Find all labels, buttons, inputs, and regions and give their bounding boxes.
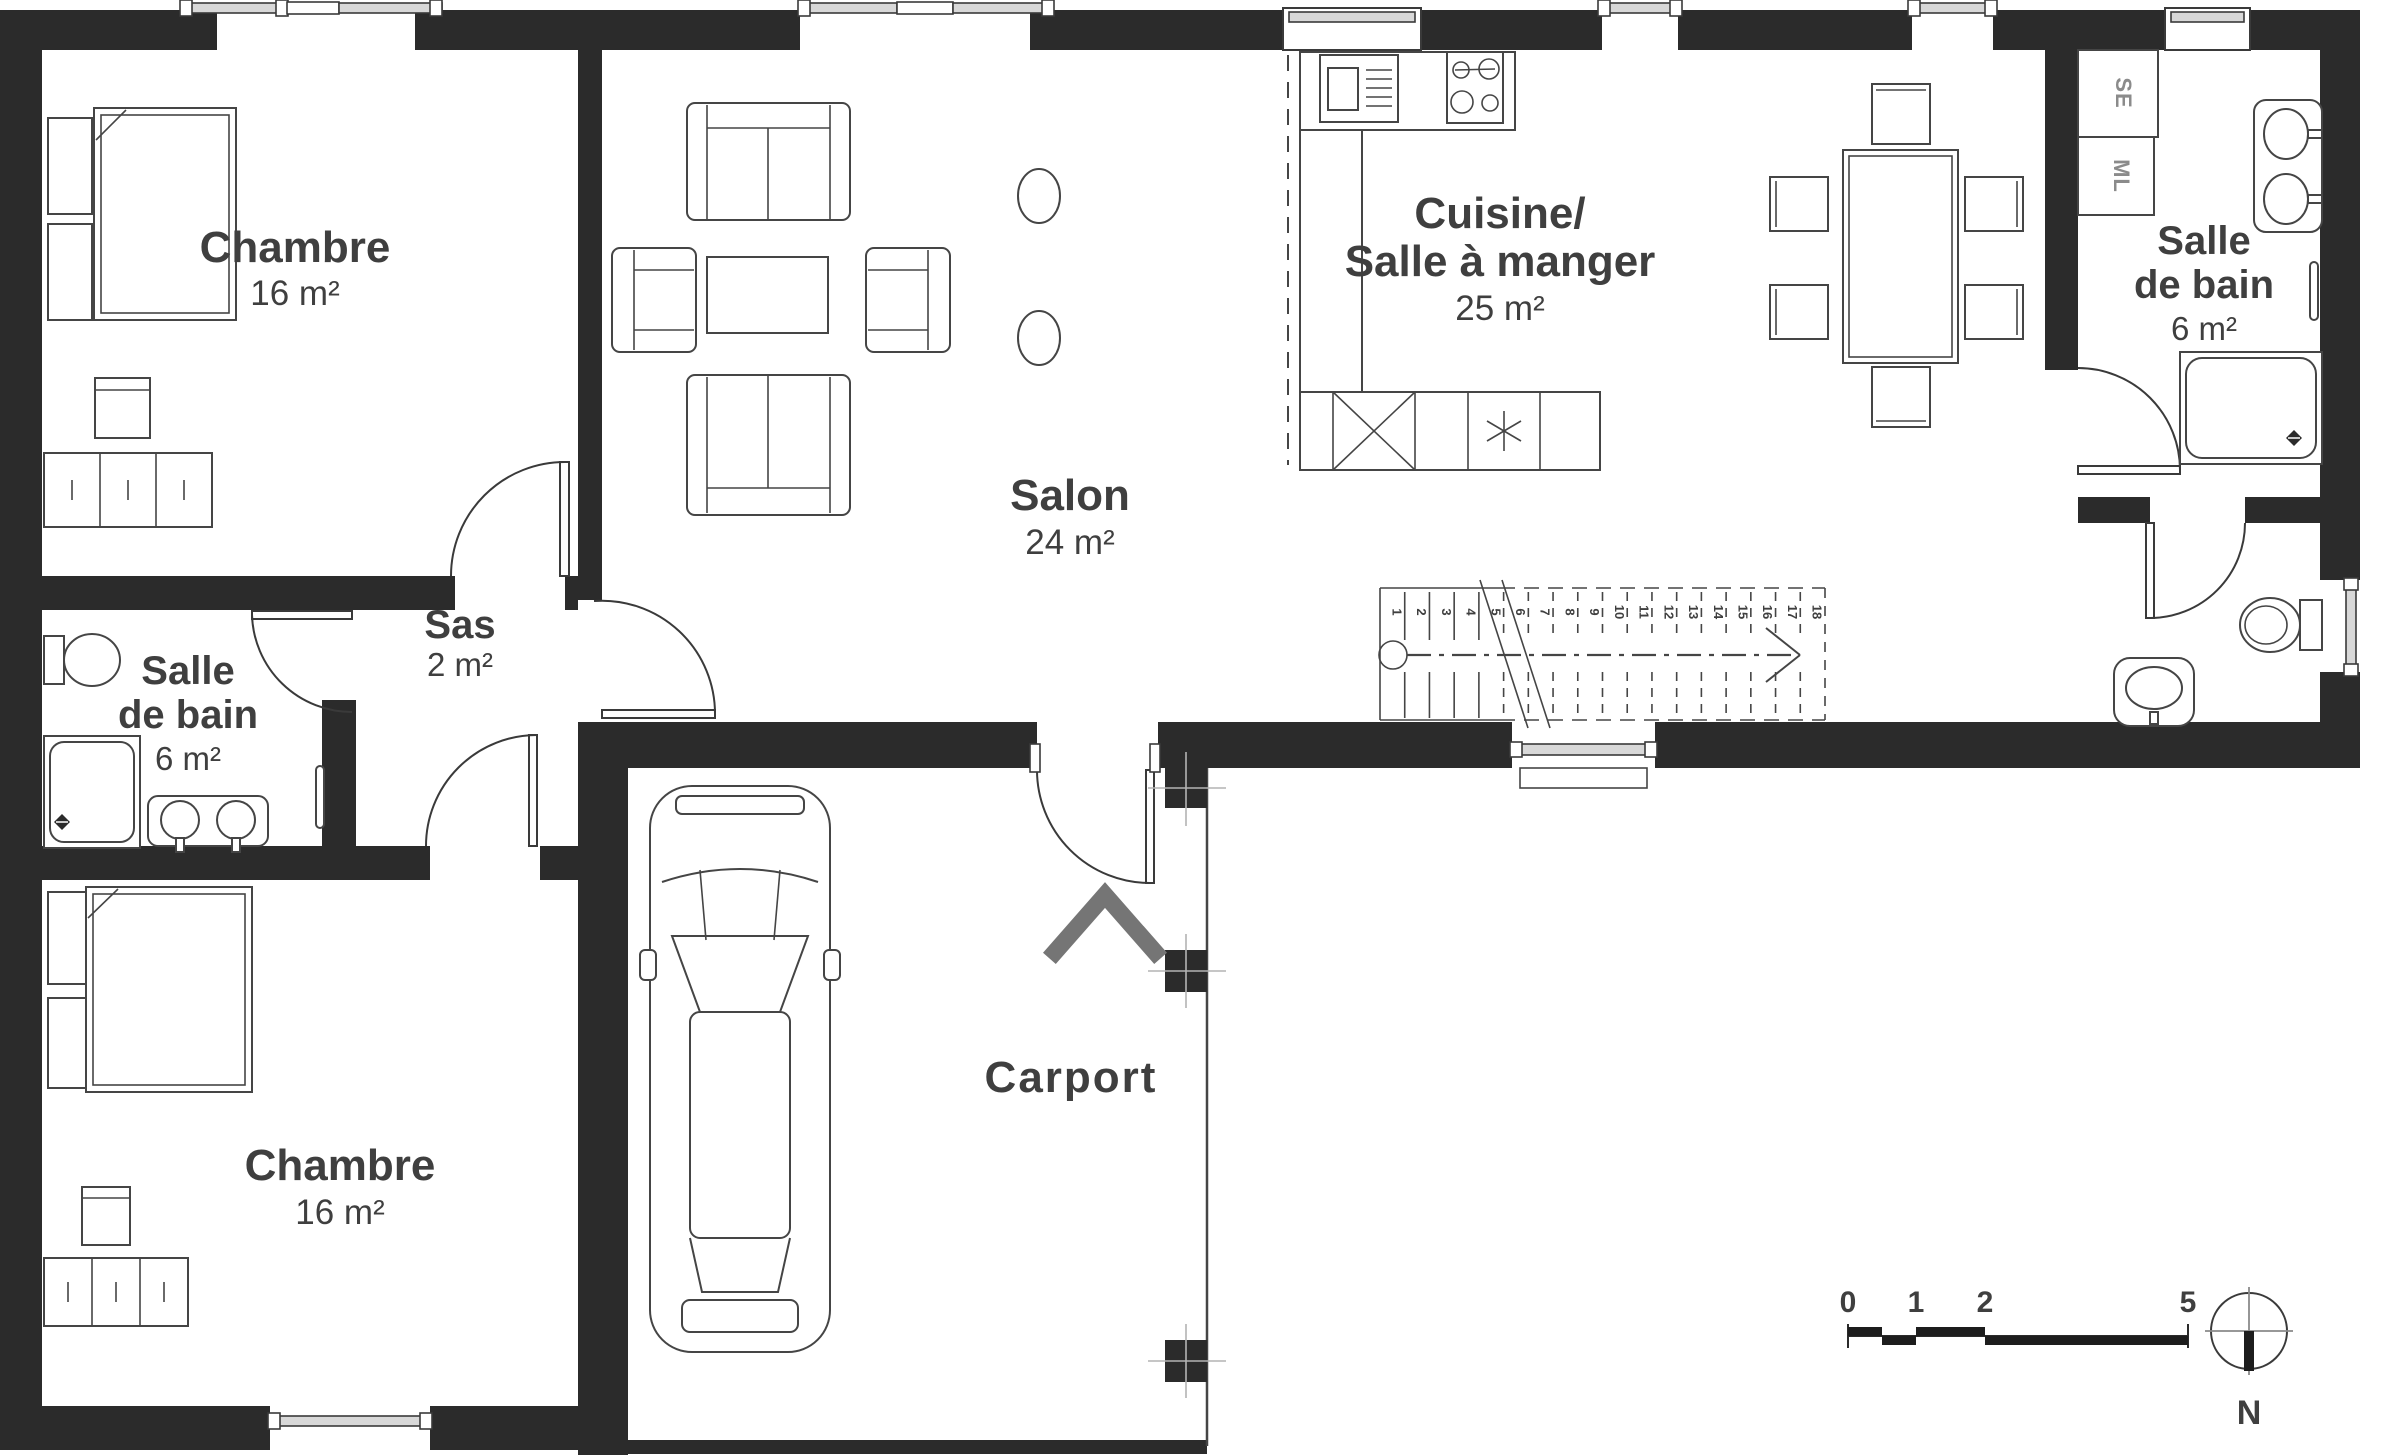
car [640,786,840,1352]
pouf-top [1018,169,1060,223]
cuisine-label-1: Cuisine/ [1414,189,1585,238]
window-wc-east [2322,578,2360,676]
stair-number: 13 [1686,605,1701,619]
scale-1: 1 [1908,1286,1925,1319]
sas-label: Sas [424,603,495,647]
toilet-wc [2240,598,2322,652]
shower-sdb-right [2180,352,2322,464]
stair-number: 17 [1785,605,1800,619]
salon-furniture [612,103,1060,515]
chair [1770,177,1828,231]
dryer-label: SE [2111,77,2136,108]
scale-2: 2 [1977,1286,1994,1319]
sdb-left-area: 6 m² [155,740,221,777]
sdb-right-label-2: de bain [2134,263,2274,307]
door-sas-hall [594,601,715,718]
freezer-star-icon [1487,411,1521,451]
windows [180,0,2360,788]
chair [1872,84,1930,144]
compass-north-label: N [2237,1394,2262,1432]
window-chambre1-b [287,0,442,16]
shower-sdb-left [44,736,140,848]
stairs: 123456789101112131415161718 [1379,580,1825,728]
window-kitchen [1283,8,1421,50]
dresser-chambre2 [44,1258,188,1326]
chair [1872,367,1930,427]
window-entry-hall [1510,722,1657,788]
chambre1-label: Chambre [200,223,391,272]
dresser-chambre1 [44,453,212,527]
sdb-right-label-1: Salle [2157,219,2250,263]
stair-number: 12 [1661,605,1676,619]
scale-0: 0 [1840,1286,1857,1319]
sdb-left-label-2: de bain [118,693,258,737]
chambre2-area: 16 m² [295,1193,384,1232]
desk-chambre2 [82,1187,130,1245]
stair-number: 9 [1587,608,1602,615]
bed-chambre2 [48,887,252,1092]
scale-bar: 0 1 2 5 [1840,1286,2197,1348]
doors [252,368,2245,883]
stair-number: 8 [1562,608,1577,615]
sofa-top [687,103,850,220]
window-sdb-right [2165,8,2250,50]
coffee-table [707,257,828,333]
washer-label: ML [2109,159,2134,193]
toilet-sdb-left [44,634,120,686]
chambre2-label: Chambre [245,1141,436,1190]
floor-plan-drawing: 123456789101112131415161718 [0,0,2400,1455]
entrance-arrow-icon [1055,895,1155,952]
stair-number: 10 [1612,605,1627,619]
stair-number: 6 [1513,608,1528,615]
stair-number: 3 [1439,608,1454,615]
armchair-right [866,248,950,352]
stair-number: 15 [1735,605,1750,619]
pouf-bottom [1018,311,1060,365]
towel-rail-sdb-right [2310,262,2318,320]
washbasin-wc [2114,658,2194,726]
door-chambre2 [426,735,537,846]
scale-5: 5 [2180,1286,2197,1319]
window-salon-b [897,0,1054,16]
door-sdb-right [2078,368,2180,474]
chair [1770,285,1828,339]
armchair-left [612,248,696,352]
sdb-left-label-1: Salle [141,649,234,693]
window-salon-a [798,0,897,16]
window-dining-b [1908,0,1997,16]
towel-rail-sdb-left [316,766,324,828]
chair [1965,285,2023,339]
dining-set [1770,84,2023,427]
stair-number: 7 [1538,608,1553,615]
stair-number: 2 [1414,608,1429,615]
salon-area: 24 m² [1025,523,1114,562]
stair-number: 16 [1760,605,1775,619]
carport-label: Carport [985,1053,1158,1102]
chair [1965,177,2023,231]
double-sink-sdb-left [148,796,268,852]
stair-number: 1 [1389,608,1404,615]
carport-pillars [1148,752,1226,1398]
double-sink-sdb-right [2254,100,2322,232]
chambre1-furniture [44,108,236,527]
stove [1447,52,1503,123]
window-chambre2-south [268,1413,432,1429]
sdb-right-area: 6 m² [2171,310,2237,347]
chambre1-area: 16 m² [250,274,339,313]
door-entry [1030,744,1160,883]
desk-chambre1 [95,378,150,438]
sas-area: 2 m² [427,646,493,683]
bed-chambre1 [48,108,236,320]
door-sdb-left [252,611,352,712]
cuisine-label-2: Salle à manger [1345,237,1656,286]
stair-number: 4 [1464,608,1479,616]
cuisine-area: 25 m² [1455,289,1544,328]
floor-plan: 123456789101112131415161718 [0,0,2400,1455]
stair-number: 14 [1711,605,1726,620]
door-wc [2146,523,2245,618]
stair-direction [1379,628,1800,682]
window-dining-a [1598,0,1682,16]
stair-number: 18 [1810,605,1825,619]
salon-label: Salon [1010,471,1130,520]
dishwasher-icon [1333,392,1415,470]
kitchen-sink [1320,55,1398,122]
window-chambre1-a [180,0,288,16]
stair-number: 11 [1637,605,1652,619]
compass-icon: N [2205,1287,2293,1432]
door-chambre1 [451,462,569,576]
sofa-bottom [687,375,850,515]
